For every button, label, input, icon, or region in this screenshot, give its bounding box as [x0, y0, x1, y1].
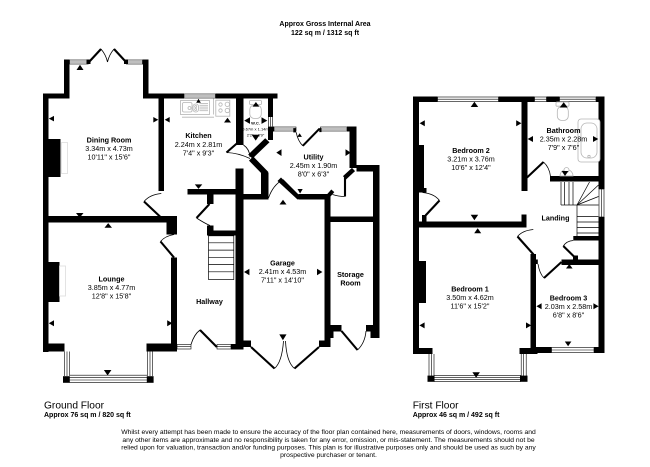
svg-text:Approx Gross Internal Area: Approx Gross Internal Area — [279, 21, 370, 28]
svg-text:Landing: Landing — [542, 214, 570, 223]
svg-text:0.67m x 1.14m: 0.67m x 1.14m — [242, 127, 269, 132]
svg-text:Room: Room — [340, 279, 360, 288]
svg-text:6'8" x 8'6": 6'8" x 8'6" — [553, 311, 585, 320]
svg-text:First Floor: First Floor — [413, 401, 459, 412]
svg-text:10'11" x 15'6": 10'11" x 15'6" — [88, 153, 131, 162]
svg-text:any other items are approximat: any other items are approximate and no r… — [122, 437, 534, 444]
svg-text:11'6" x 15'2": 11'6" x 15'2" — [451, 302, 490, 311]
svg-text:10'6" x 12'4": 10'6" x 12'4" — [451, 163, 491, 172]
svg-text:Whilst every attempt has been: Whilst every attempt has been made to en… — [121, 429, 536, 436]
svg-text:12'8" x 15'8": 12'8" x 15'8" — [92, 292, 132, 301]
svg-text:Ground Floor: Ground Floor — [44, 401, 105, 412]
svg-text:prospective purchaser or tenan: prospective purchaser or tenant. — [280, 452, 377, 459]
svg-text:Approx 46 sq m / 492 sq ft: Approx 46 sq m / 492 sq ft — [413, 412, 500, 419]
svg-text:7'4" x 9'3": 7'4" x 9'3" — [183, 148, 215, 157]
svg-text:relied upon for valuation, tra: relied upon for valuation, transaction a… — [121, 445, 536, 452]
svg-text:7'9" x 7'6": 7'9" x 7'6" — [548, 143, 580, 152]
svg-text:W.C.: W.C. — [251, 121, 260, 126]
svg-text:7'11" x 14'10": 7'11" x 14'10" — [261, 276, 304, 285]
svg-text:122 sq m / 1312 sq ft: 122 sq m / 1312 sq ft — [291, 30, 360, 37]
svg-text:Hallway: Hallway — [196, 297, 223, 306]
svg-text:8'0" x 6'3": 8'0" x 6'3" — [298, 170, 330, 179]
svg-text:Approx 76 sq m / 820 sq ft: Approx 76 sq m / 820 sq ft — [44, 412, 131, 419]
